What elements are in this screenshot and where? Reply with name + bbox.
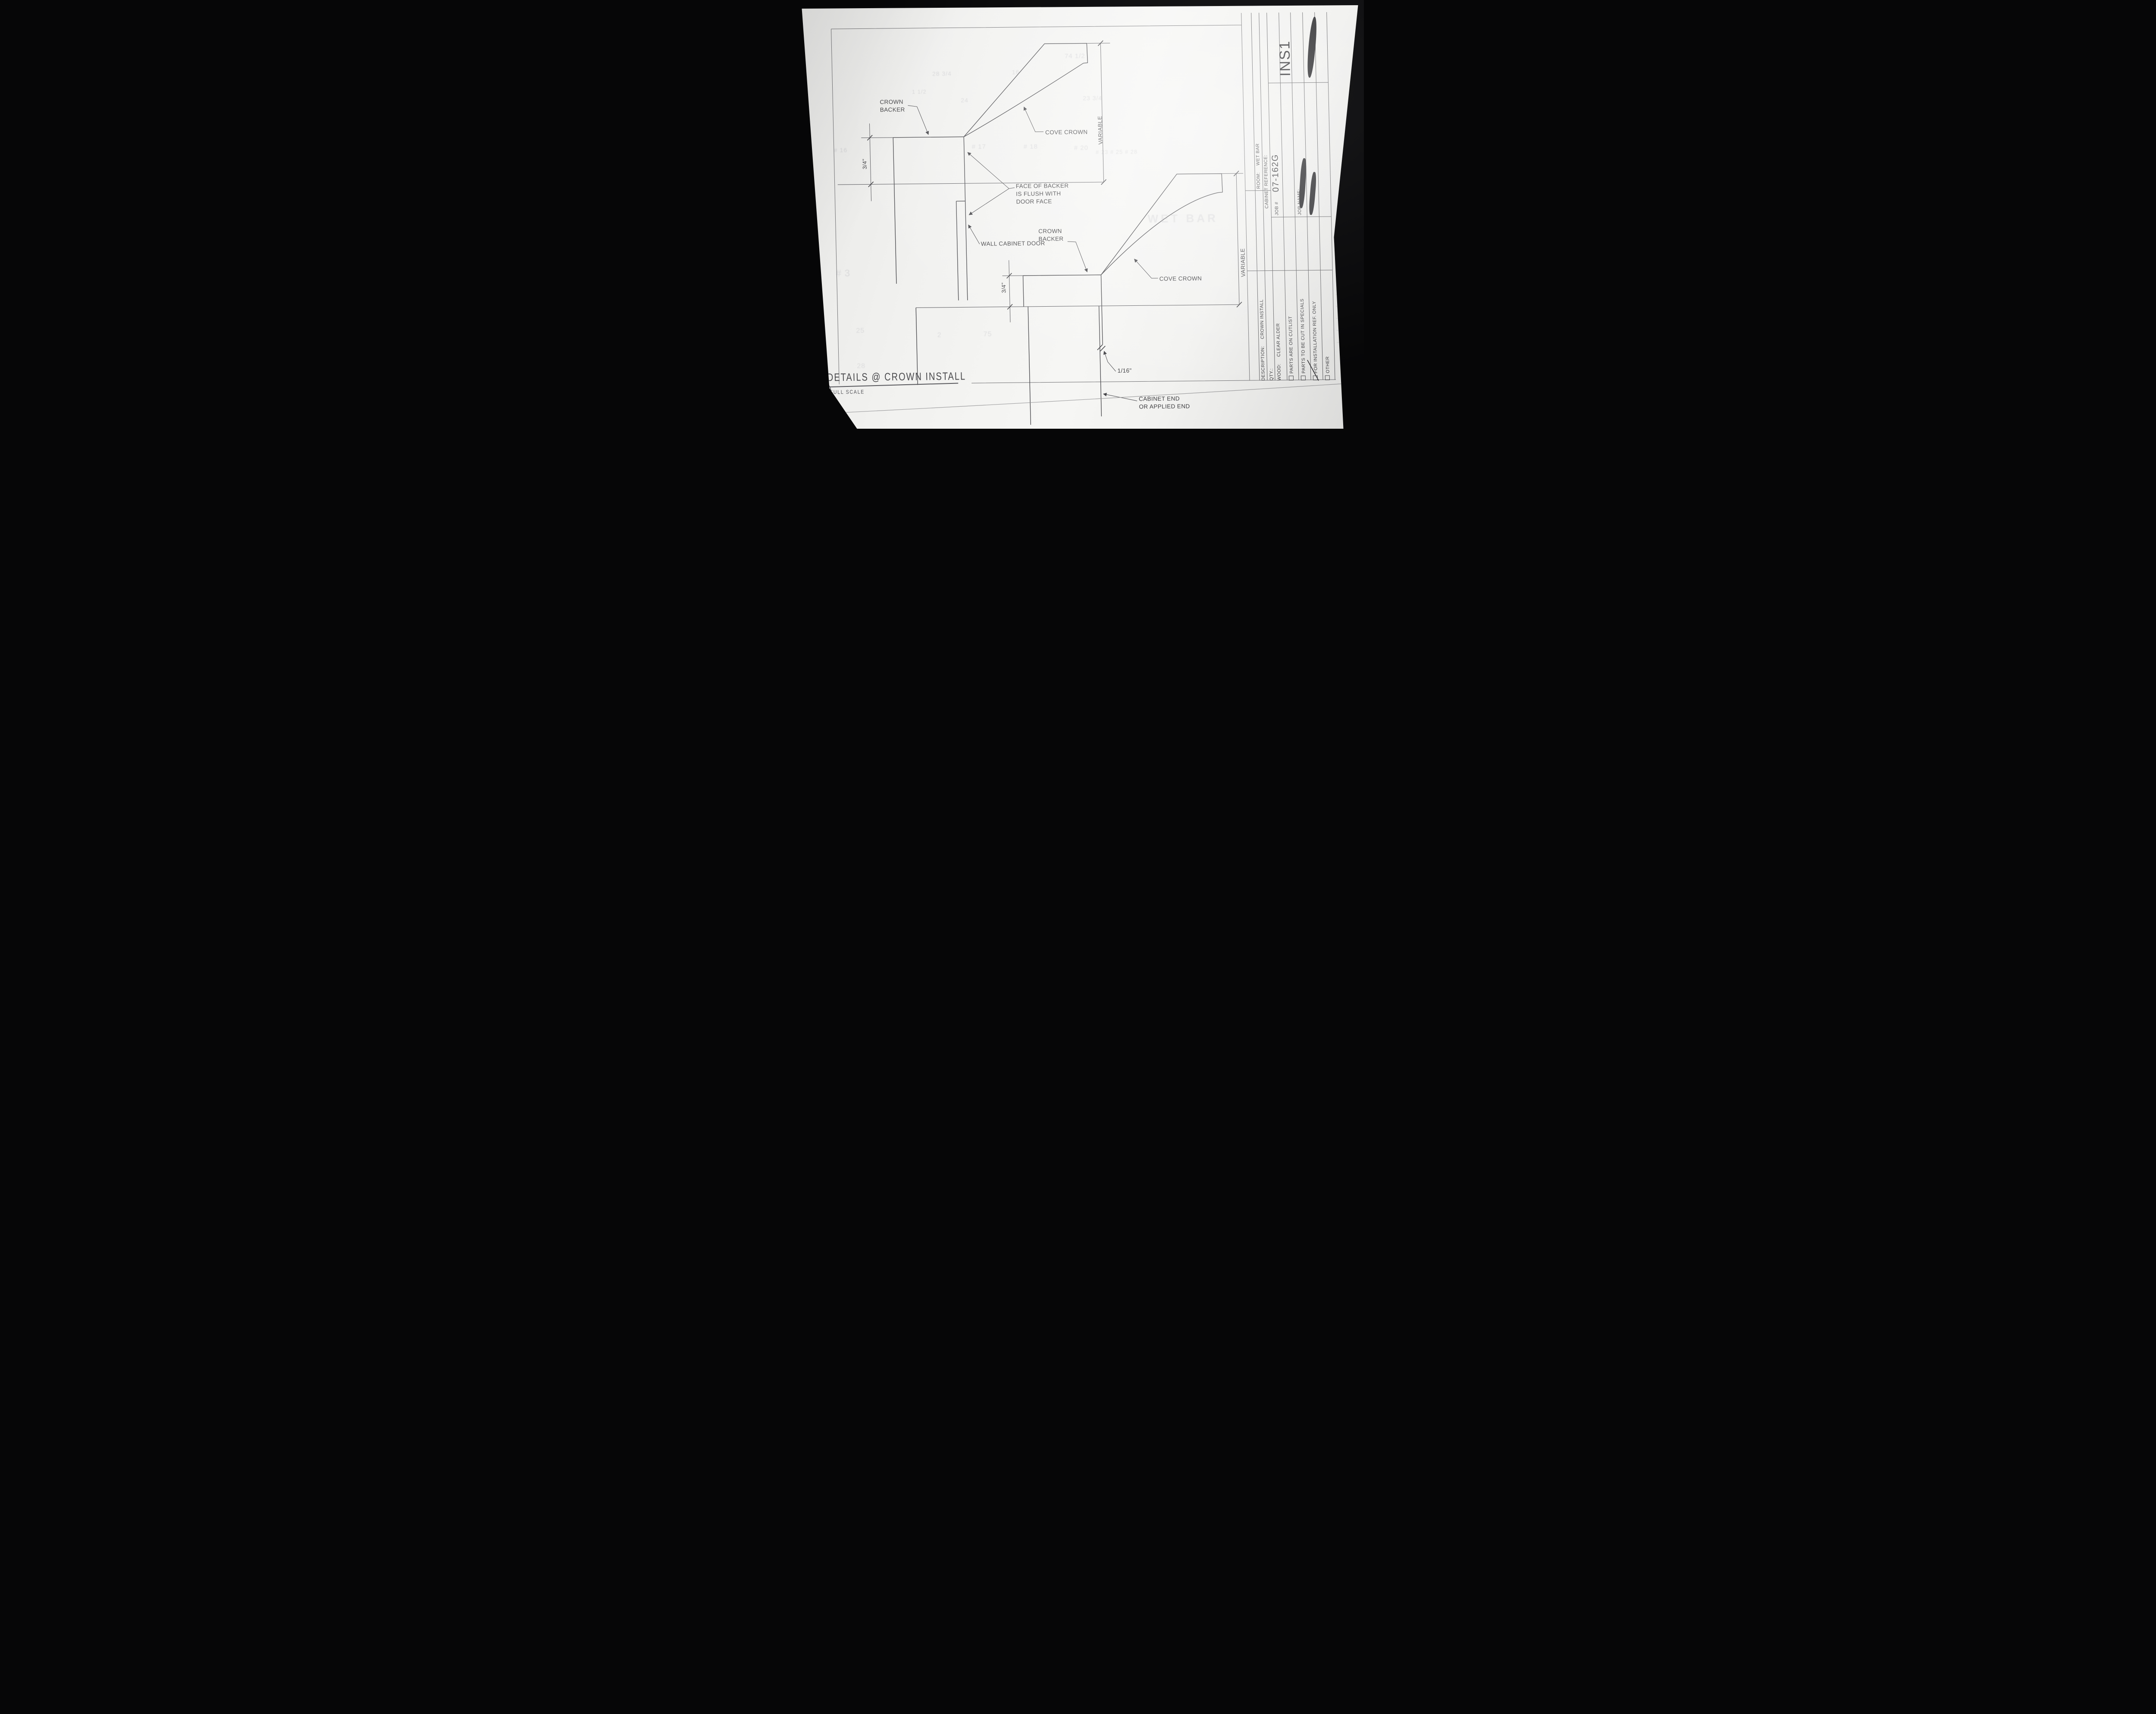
lower-detail-dimensions (913, 171, 1247, 353)
ghost-text: # 3 (836, 268, 850, 279)
ghost-text: 16 (1012, 69, 1019, 75)
flush-note: FACE OF BACKER IS FLUSH WITH DOOR FACE (1015, 182, 1069, 206)
titleblock-qty: QTY.: (1269, 368, 1274, 381)
ghost-text: WET BAR (1147, 212, 1218, 226)
upper-crown-backer-label: CROWN BACKER (880, 98, 905, 114)
note-line: DOOR FACE (1016, 198, 1069, 206)
lower-thickness-dim: 3/4" (1000, 283, 1006, 293)
titleblock-room: ROOM:WET BAR (1255, 143, 1261, 188)
wood-label: WOOD: (1276, 364, 1282, 380)
ghost-text: # 18 (1023, 143, 1038, 151)
upper-thickness-dim: 3/4" (862, 159, 868, 170)
titleblock-cabinet-reference: CABINET REFERENCE: (1263, 155, 1269, 209)
ghost-text: 74 1/2 (1064, 53, 1085, 60)
lower-cove-crown-label: COVE CROWN (1159, 275, 1202, 283)
ghost-text: 28 (857, 363, 865, 370)
upper-variable-dim: VARIABLE (1097, 116, 1103, 145)
photo-of-drawing: 74 1/2 28 3/4 16 24 23 3/4 1 1/2 # 16 # … (793, 0, 1364, 429)
note-line: OR APPLIED END (1139, 402, 1190, 411)
checkbox-label: OTHER (1325, 356, 1330, 373)
checkbox-label: PARTS ARE ON CUTLIST (1288, 316, 1294, 374)
ghost-text: 24 (961, 97, 968, 104)
titleblock-checkbox-other: OTHER (1324, 356, 1330, 380)
drawing-title: DETAILS @ CROWN INSTALL (827, 370, 966, 384)
note-line: CABINET END (1138, 395, 1190, 403)
ghost-text: # 23 # 25 # 28 (1095, 148, 1137, 155)
job-number-label: JOB # (1274, 202, 1279, 216)
ghost-text: 25 (856, 327, 865, 335)
detail-number: 1 (818, 386, 822, 392)
titleblock-wood: WOOD:CLEAR ALDER (1276, 323, 1282, 380)
label-line: CROWN (880, 98, 905, 106)
label-line: CROWN (1038, 227, 1063, 235)
checkbox-icon (1325, 375, 1329, 380)
lower-detail-leaders (1067, 241, 1160, 402)
ghost-text: 28 3/4 (932, 70, 951, 77)
room-label: ROOM: (1256, 173, 1261, 189)
label-line: BACKER (880, 106, 905, 113)
ghost-text: 2 (937, 332, 941, 339)
lower-detail-geometry (913, 174, 1228, 426)
ghost-text: 1 1/2 (912, 88, 926, 95)
description-label: DESCRIPTION: (1260, 346, 1266, 381)
label-line: BACKER (1038, 235, 1063, 243)
wood-value: CLEAR ALDER (1275, 323, 1282, 357)
sheet-code: INS1 (1277, 40, 1293, 76)
description-value: CROWN INSTALL (1259, 299, 1265, 339)
wall-cabinet-door-label: WALL CABINET DOOR (981, 240, 1045, 248)
ghost-text: 23 3/4 (1082, 94, 1102, 101)
checkbox-icon (1313, 375, 1317, 380)
paper-sheet: 74 1/2 28 3/4 16 24 23 3/4 1 1/2 # 16 # … (793, 0, 1364, 429)
checkbox-icon (1288, 376, 1293, 380)
upper-cove-crown-label: COVE CROWN (1045, 128, 1087, 136)
lower-variable-dim: VARIABLE (1240, 248, 1246, 277)
upper-detail-dimensions (834, 41, 1113, 201)
ghost-revision-rows (1335, 294, 1363, 342)
upper-detail-leaders (908, 104, 1046, 245)
ghost-text: # 17 (971, 143, 986, 151)
drawing-scale: FULL SCALE (830, 389, 865, 396)
note-line: FACE OF BACKER (1015, 182, 1069, 190)
ghost-text: # 20 (1074, 144, 1088, 151)
gap-dim-label: 1/16" (1117, 367, 1131, 375)
upper-detail-geometry (891, 43, 1093, 301)
lower-crown-backer-label: CROWN BACKER (1038, 227, 1063, 243)
cabinet-end-note: CABINET END OR APPLIED END (1138, 395, 1190, 411)
job-number-value: 07-162G (1271, 154, 1280, 192)
ghost-text: 75 (983, 331, 992, 339)
checkbox-icon (1300, 376, 1305, 380)
ghost-text: # 16 (834, 147, 847, 154)
room-value: WET BAR (1255, 143, 1260, 165)
sheet-content: 74 1/2 28 3/4 16 24 23 3/4 1 1/2 # 16 # … (793, 0, 1364, 429)
note-line: IS FLUSH WITH (1016, 190, 1069, 198)
